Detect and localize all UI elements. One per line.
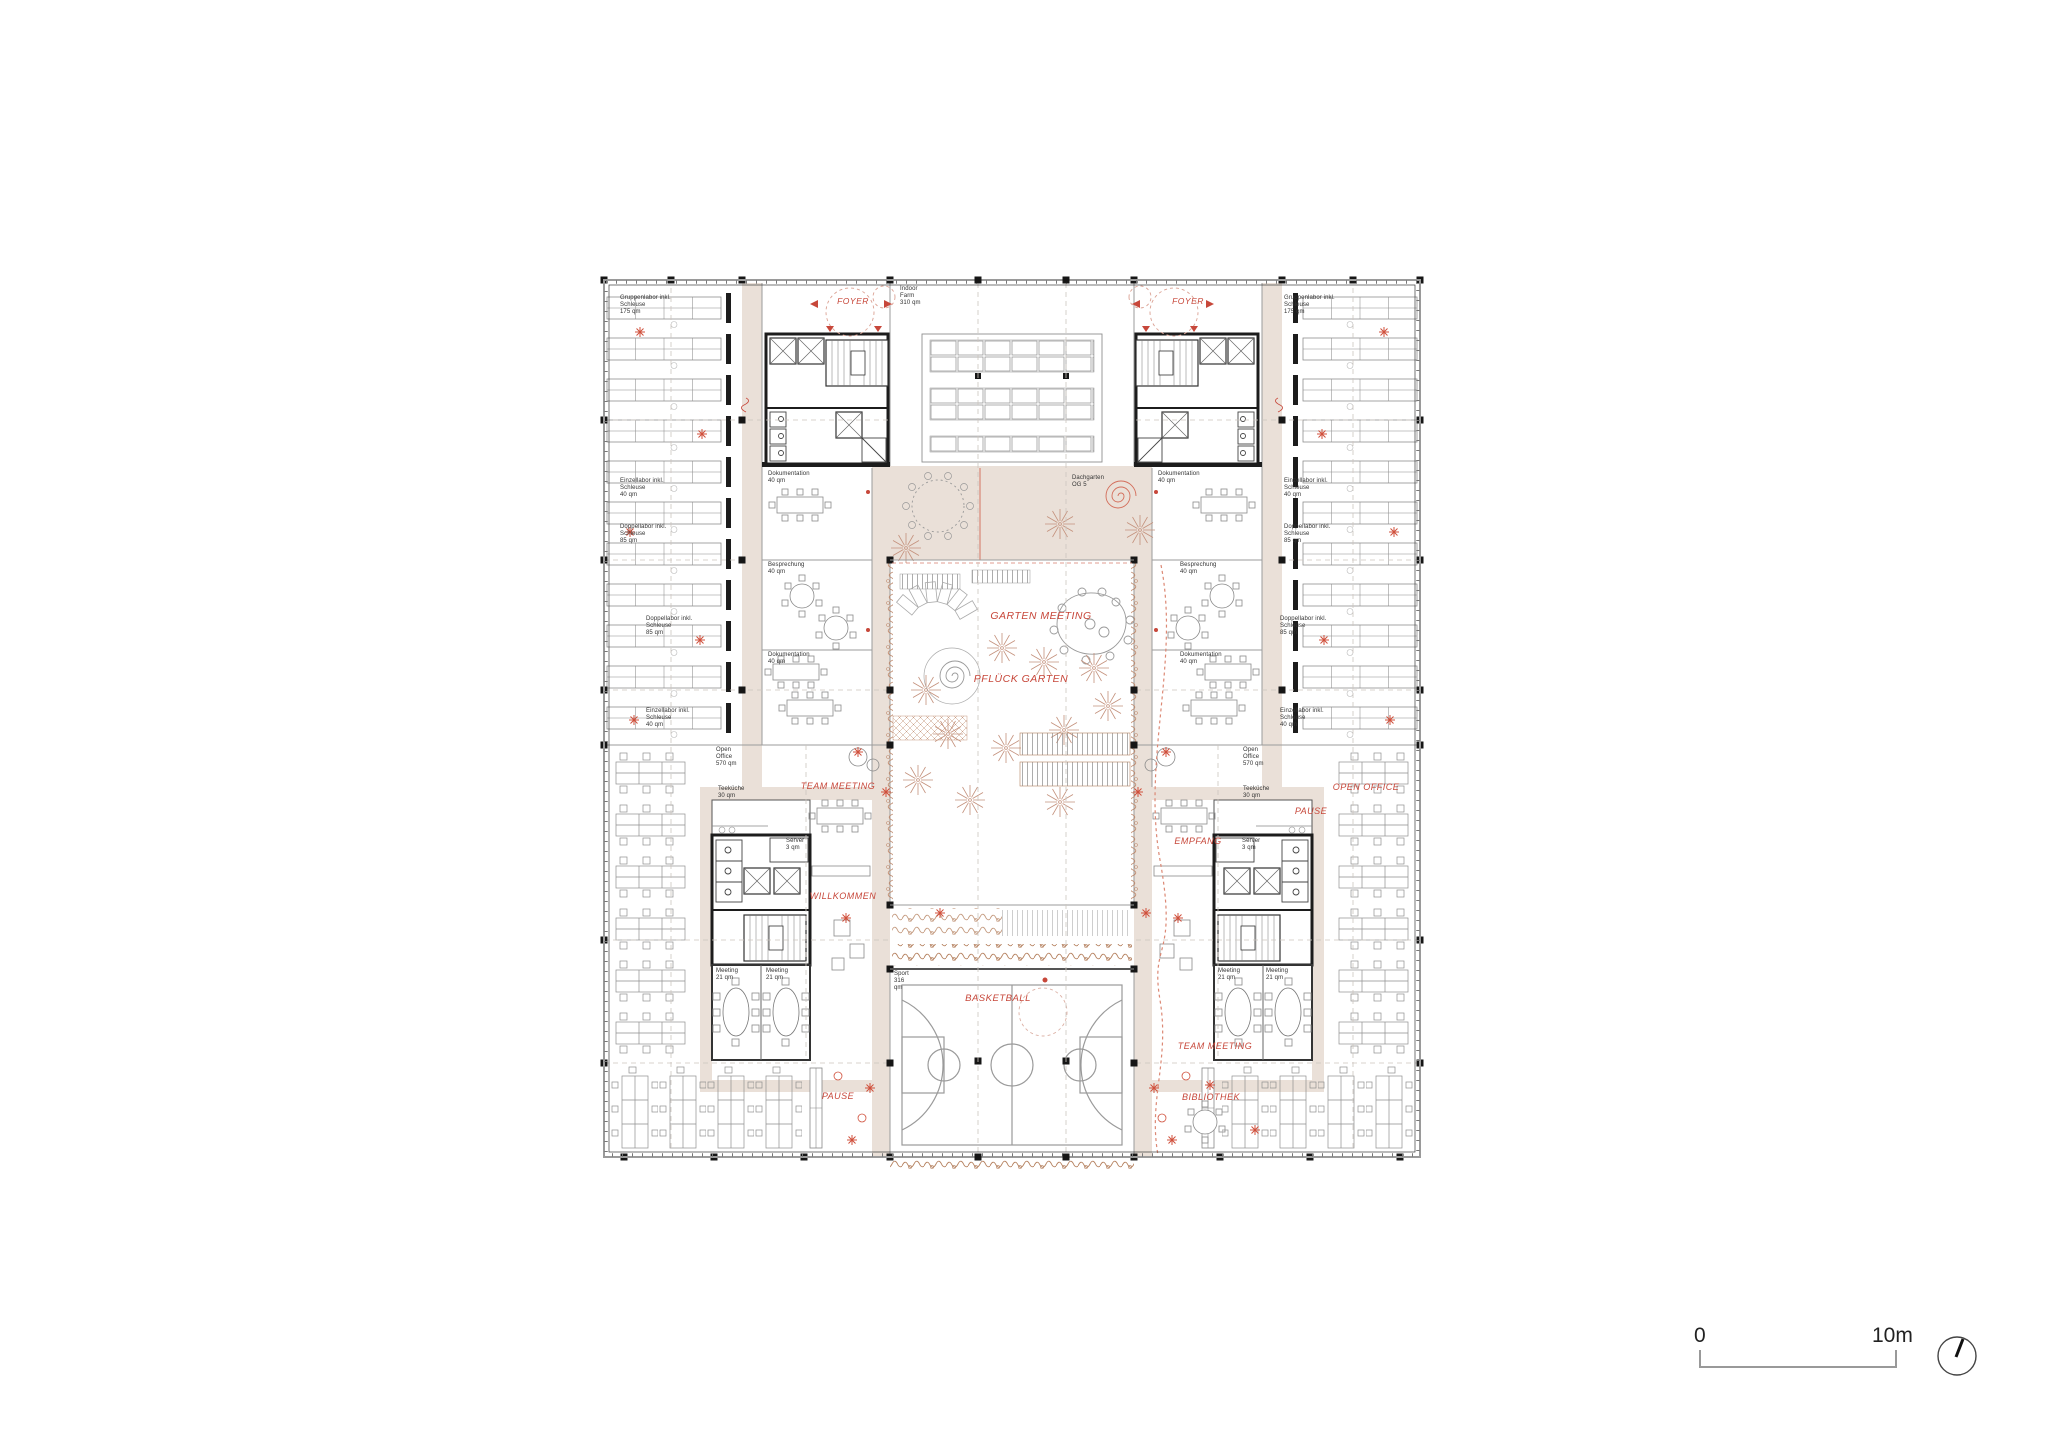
room-label-einzellabor-left-1: Einzellabor inkl. Schleuse 40 qm: [620, 478, 664, 499]
zone-label-basketball: BASKETBALL: [965, 993, 1031, 1004]
room-label-server-left: Server 3 qm: [786, 838, 804, 852]
room-label-einzellabor-right-2: Einzellabor inkl. Schleuse 40 qm: [1280, 708, 1324, 729]
floor-plan-page: FOYER FOYER GARTEN MEETING PFLÜCK GARTEN…: [0, 0, 2048, 1446]
room-label-einzellabor-left-2: Einzellabor inkl. Schleuse 40 qm: [646, 708, 690, 729]
room-label-server-right: Server 3 qm: [1242, 838, 1260, 852]
zone-label-foyer-right: FOYER: [1172, 296, 1204, 306]
room-label-open-office-right: Open Office 570 qm: [1243, 747, 1264, 768]
room-label-meeting-left-1: Meeting 21 qm: [716, 968, 738, 982]
zone-label-bibliothek: BIBLIOTHEK: [1182, 1092, 1240, 1102]
indoor-farm: [922, 334, 1102, 462]
scale-bar: [1700, 1350, 1896, 1367]
room-label-sport: Sport 316 qm: [894, 971, 909, 992]
room-label-meeting-left-2: Meeting 21 qm: [766, 968, 788, 982]
room-label-teekueche-right: Teeküche 30 qm: [1243, 786, 1270, 800]
room-label-gruppenlabor-left: Gruppenlabor inkl. Schleuse 175 qm: [620, 295, 671, 316]
room-label-doppellabor-right-2: Doppellabor inkl. Schleuse 85 qm: [1280, 616, 1326, 637]
zone-label-open-office-right: OPEN OFFICE: [1333, 782, 1400, 792]
zone-label-pause-right: PAUSE: [1295, 806, 1327, 816]
zone-label-foyer-left: FOYER: [837, 296, 869, 306]
bibliothek-furniture: [1185, 1101, 1225, 1143]
room-label-meeting-right-1: Meeting 21 qm: [1218, 968, 1240, 982]
room-label-dokumentation-right-2: Dokumentation 40 qm: [1180, 652, 1222, 666]
room-label-dokumentation-left-2: Dokumentation 40 qm: [768, 652, 810, 666]
zone-label-willkommen: WILLKOMMEN: [810, 891, 877, 901]
scale-end-label: 10m: [1872, 1324, 1913, 1348]
room-label-meeting-right-2: Meeting 21 qm: [1266, 968, 1288, 982]
zone-label-garten-meeting: GARTEN MEETING: [990, 610, 1091, 622]
zone-label-pflueck-garten: PFLÜCK GARTEN: [974, 673, 1068, 685]
room-label-dokumentation-right-1: Dokumentation 40 qm: [1158, 471, 1200, 485]
north-indicator-icon: [1938, 1337, 1976, 1375]
room-label-einzellabor-right-1: Einzellabor inkl. Schleuse 40 qm: [1284, 478, 1328, 499]
scale-start-label: 0: [1694, 1324, 1706, 1348]
zone-label-empfang: EMPFANG: [1174, 836, 1221, 846]
right-wing: [1129, 277, 1424, 1161]
room-label-teekueche-left: Teeküche 30 qm: [718, 786, 745, 800]
room-label-doppellabor-left-1: Doppellabor inkl. Schleuse 85 qm: [620, 524, 666, 545]
room-label-doppellabor-right-1: Doppellabor inkl. Schleuse 85 qm: [1284, 524, 1330, 545]
left-wing: [601, 277, 896, 1161]
room-label-dokumentation-left-1: Dokumentation 40 qm: [768, 471, 810, 485]
room-label-dachgarten: Dachgarten OG 5: [1072, 475, 1104, 489]
dachgarten-zone: [872, 466, 1152, 560]
zone-label-team-meeting-right: TEAM MEETING: [1178, 1041, 1253, 1051]
zone-label-pause-left: PAUSE: [822, 1091, 854, 1101]
room-label-besprechung-left: Besprechung 40 qm: [768, 562, 804, 576]
room-label-gruppenlabor-right: Gruppenlabor inkl. Schleuse 175 qm: [1284, 295, 1335, 316]
room-label-open-office-left: Open Office 570 qm: [716, 747, 737, 768]
zone-label-team-meeting-left: TEAM MEETING: [801, 781, 876, 791]
room-label-doppellabor-left-2: Doppellabor inkl. Schleuse 85 qm: [646, 616, 692, 637]
room-label-indoor-farm: Indoor Farm 310 qm: [900, 286, 921, 307]
room-label-besprechung-right: Besprechung 40 qm: [1180, 562, 1216, 576]
floor-plan-drawing: [0, 0, 2048, 1446]
